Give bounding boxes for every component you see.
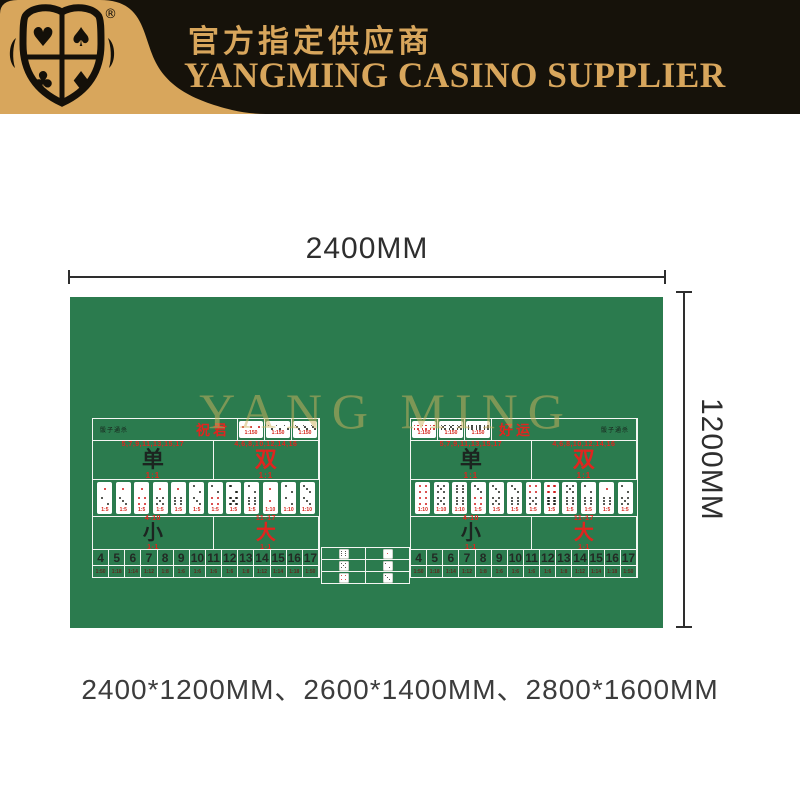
die-pip	[341, 555, 343, 557]
luck-wish-label: 祝君	[196, 420, 230, 440]
die-pip	[529, 491, 531, 493]
die-6-icon	[454, 484, 465, 495]
die-pip	[287, 428, 289, 430]
die-2-icon	[228, 484, 239, 495]
width-dimension-line	[68, 270, 666, 284]
die-5-icon	[528, 496, 539, 507]
odd-even-band: 5,7,9,11,13,15,17单1:14,6,8,10,12,14,16双1…	[410, 440, 638, 480]
total-odds-cell: 1:8	[157, 565, 174, 578]
die-4-icon	[210, 496, 221, 507]
total-odds-cell: 1:6	[189, 565, 206, 578]
die-pip	[572, 497, 574, 499]
dice-kill-all-label: 骰子通杀	[100, 425, 128, 434]
pair-odds-label: 1:5	[511, 508, 518, 513]
die-4-icon	[417, 496, 428, 507]
die-pip	[480, 491, 482, 493]
die-pip	[309, 491, 311, 493]
total-cell-15: 15	[270, 549, 287, 566]
die-pip	[443, 497, 445, 499]
total-odds-cell: 1:6	[173, 565, 190, 578]
die-pip	[159, 488, 161, 490]
die-pip	[174, 500, 176, 502]
die-pip	[345, 563, 347, 565]
die-pip	[284, 425, 286, 427]
die-pip	[437, 485, 439, 487]
die-pip	[498, 497, 500, 499]
luck-wish-label: 好运	[499, 420, 533, 440]
die-pip	[532, 500, 534, 502]
big-character: 大	[256, 523, 276, 543]
die-pip	[138, 497, 140, 499]
die-pip	[553, 500, 555, 502]
total-odds-cell: 1:8	[555, 565, 572, 578]
odd-character: 单	[142, 449, 164, 471]
total-cell-14: 14	[253, 549, 270, 566]
total-odds-cell: 1:14	[270, 565, 287, 578]
die-pip	[122, 488, 124, 490]
triple-bet-box: 1:150	[412, 421, 436, 438]
small-big-band: 4-10小1-111-17大1-1	[92, 516, 320, 550]
die-pip	[419, 503, 421, 505]
odd-bet-area: 5,7,9,11,13,15,17单1:1	[92, 440, 214, 480]
brand-header: ♥ ♠ ♣ ♦ ® 官方指定供应商 YANGMING CASINO SUPPLI…	[0, 0, 800, 114]
total-odds-cell: 1:12	[253, 565, 270, 578]
small-bet-area: 4-10小1-1	[410, 516, 532, 550]
die-pip	[425, 425, 427, 427]
die-pip	[345, 579, 347, 581]
die-pip	[553, 503, 555, 505]
die-pip	[547, 485, 549, 487]
die-3-icon	[509, 484, 520, 495]
die-pip	[553, 497, 555, 499]
die-3-icon	[491, 484, 502, 495]
die-pip	[269, 488, 271, 490]
die-pip	[621, 503, 623, 505]
height-dimension-line	[676, 291, 692, 628]
die-1-icon	[601, 484, 612, 495]
die-pip	[414, 425, 416, 427]
die-pip	[174, 503, 176, 505]
betting-layout-right-half: 1:1501:1501:150好运骰子通杀5,7,9,11,13,15,17单1…	[410, 418, 638, 583]
die-pip	[276, 425, 278, 427]
die-pip	[345, 555, 347, 557]
svg-text:♥: ♥	[31, 23, 54, 53]
die-pip	[425, 503, 427, 505]
pair-odds-label: 1:5	[493, 508, 500, 513]
total-odds-cell: 1:6	[523, 565, 540, 578]
die-1-icon	[118, 484, 129, 495]
odd-character: 单	[460, 449, 482, 471]
die-pip	[440, 500, 442, 502]
pair-odds-label: 1:5	[101, 508, 108, 513]
die-pip	[572, 500, 574, 502]
die-pip	[101, 497, 103, 499]
die-pip	[498, 503, 500, 505]
triple-bet-cell: 1:150	[464, 418, 492, 441]
total-odds-cell: 1:14	[124, 565, 141, 578]
pair-bet-cell: 1:5	[544, 482, 559, 514]
die-pip	[511, 485, 513, 487]
die-pip	[425, 485, 427, 487]
die-pip	[566, 503, 568, 505]
die-pip	[514, 488, 516, 490]
total-cell-5: 5	[426, 549, 443, 566]
die-pip	[433, 425, 435, 427]
die-pip	[566, 485, 568, 487]
die-pip	[229, 485, 231, 487]
total-cell-13: 13	[555, 549, 572, 566]
small-character: 小	[143, 523, 163, 543]
die-pip	[529, 503, 531, 505]
die-pip	[511, 500, 513, 502]
total-odds-cell: 1:18	[108, 565, 125, 578]
pair-odds-label: 1:5	[621, 508, 628, 513]
die-pip	[144, 497, 146, 499]
die-4-icon	[417, 484, 428, 495]
die-pip	[603, 500, 605, 502]
total-odds-cell: 1:6	[205, 565, 222, 578]
die-pip	[235, 503, 237, 505]
triple-odds-label: 1:150	[472, 431, 485, 436]
die-pip	[492, 503, 494, 505]
die-pip	[254, 500, 256, 502]
die-pip	[492, 497, 494, 499]
die-pip	[385, 575, 387, 577]
even-bet-area: 4,6,8,10,12,14,16双1:1	[213, 440, 319, 480]
die-1-icon	[155, 484, 166, 495]
triple-bet-cell: 1:150	[291, 418, 319, 441]
pair-odds-label: 1:5	[248, 508, 255, 513]
die-pip	[487, 428, 489, 430]
total-cell-16: 16	[604, 549, 621, 566]
die-pip	[444, 425, 446, 427]
die-pip	[535, 497, 537, 499]
die-pip	[460, 425, 462, 427]
total-cell-7: 7	[458, 549, 475, 566]
triple-bet-cell: 1:150	[410, 418, 438, 441]
die-4-icon	[546, 484, 557, 495]
die-pip	[285, 485, 287, 487]
die-pip	[492, 485, 494, 487]
total-odds-cell: 1:18	[286, 565, 303, 578]
total-cell-12: 12	[221, 549, 238, 566]
die-pip	[584, 485, 586, 487]
pair-bet-cell: 1:5	[489, 482, 504, 514]
die-pip	[341, 563, 343, 565]
die-pip	[443, 485, 445, 487]
total-odds-cell: 1:14	[588, 565, 605, 578]
die-3-icon	[302, 496, 313, 507]
die-pip	[441, 428, 443, 430]
die-pip	[624, 500, 626, 502]
pair-bet-cell: 1:5	[208, 482, 223, 514]
pair-bet-cell: 1:10	[263, 482, 278, 514]
big-range-label: 11-17	[574, 515, 594, 522]
die-pip	[177, 488, 179, 490]
pair-odds-label: 1:5	[120, 508, 127, 513]
die-pip	[547, 500, 549, 502]
single-die-bet-block	[322, 548, 410, 584]
die-pip	[199, 491, 201, 493]
total-cell-8: 8	[475, 549, 492, 566]
die-pip	[122, 500, 124, 502]
pair-odds-label: 1:5	[193, 508, 200, 513]
die-2-icon	[583, 484, 594, 495]
die-pip	[498, 491, 500, 493]
available-sizes-caption: 2400*1200MM、2600*1400MM、2800*1600MM	[0, 668, 800, 708]
die-pip	[389, 567, 391, 569]
die-pip	[480, 503, 482, 505]
big-bet-area: 11-17大1-1	[531, 516, 637, 550]
pair-odds-label: 1:5	[156, 508, 163, 513]
die-6-icon	[339, 549, 349, 559]
die-2-icon	[620, 484, 631, 495]
die-6-icon	[246, 496, 257, 507]
die-pip	[511, 503, 513, 505]
die-pip	[254, 503, 256, 505]
die-pip	[517, 497, 519, 499]
pair-odds-label: 1:5	[175, 508, 182, 513]
total-odds-cell: 1:50	[302, 565, 319, 578]
pair-odds-label: 1:5	[138, 508, 145, 513]
die-1-icon	[383, 549, 393, 559]
triple-bet-box: 1:150	[239, 421, 263, 438]
totals-number-row: 4567891011121314151617	[410, 549, 638, 566]
kill-all-cell: 骰子通杀祝君	[92, 418, 238, 441]
die-pip	[547, 503, 549, 505]
total-odds-cell: 1:8	[237, 565, 254, 578]
die-3-icon	[383, 573, 393, 583]
die-2-icon	[383, 561, 393, 571]
die-6-icon	[546, 496, 557, 507]
die-pip	[462, 503, 464, 505]
die-pip	[474, 485, 476, 487]
die-pip	[211, 497, 213, 499]
pair-bet-cell: 1:10	[452, 482, 467, 514]
die-2-icon	[283, 484, 294, 495]
die-pip	[456, 497, 458, 499]
die-pip	[211, 503, 213, 505]
die-1-icon	[265, 496, 276, 507]
die-pip	[425, 497, 427, 499]
total-cell-9: 9	[173, 549, 190, 566]
total-cell-10: 10	[507, 549, 524, 566]
triple-odds-label: 1:150	[245, 431, 258, 436]
die-pip	[584, 503, 586, 505]
die-pip	[621, 485, 623, 487]
die-5-icon	[491, 496, 502, 507]
die-pip	[341, 579, 343, 581]
die-pip	[345, 567, 347, 569]
small-bet-area: 4-10小1-1	[92, 516, 214, 550]
die-pip	[250, 426, 252, 428]
die-2-icon	[191, 484, 202, 495]
die-pip	[217, 503, 219, 505]
die-pip	[627, 491, 629, 493]
die-2-icon	[99, 496, 110, 507]
pair-bet-cell: 1:10	[434, 482, 449, 514]
die-pip	[180, 497, 182, 499]
pair-bet-cell: 1:5	[171, 482, 186, 514]
big-bet-area: 11-17大1-1	[213, 516, 319, 550]
die-pip	[495, 500, 497, 502]
die-pip	[474, 497, 476, 499]
die-6-icon	[173, 496, 184, 507]
triple-bet-box: 1:150	[293, 421, 317, 438]
pair-bet-cell: 1:5	[581, 482, 596, 514]
pair-bet-cell: 1:10	[415, 482, 430, 514]
die-pip	[517, 503, 519, 505]
small-character: 小	[461, 523, 481, 543]
totals-odds-row: 1:501:181:141:121:81:61:61:61:61:81:121:…	[410, 565, 638, 578]
pair-bet-cell: 1:5	[97, 482, 112, 514]
die-1-icon	[99, 484, 110, 495]
total-odds-cell: 1:12	[458, 565, 475, 578]
die-pip	[199, 503, 201, 505]
pair-bets-band: 1:101:101:101:51:51:51:51:51:51:51:51:5	[410, 479, 638, 517]
die-pip	[414, 428, 416, 430]
svg-text:♠: ♠	[69, 23, 92, 53]
total-cell-7: 7	[140, 549, 157, 566]
pair-odds-label: 1:5	[548, 508, 555, 513]
die-5-icon	[436, 484, 447, 495]
die-pip	[387, 553, 389, 555]
die-pip	[235, 491, 237, 493]
die-1-icon	[265, 484, 276, 495]
die-pip	[248, 503, 250, 505]
die-6-icon	[509, 496, 520, 507]
die-2-icon	[210, 484, 221, 495]
die-5-icon	[436, 496, 447, 507]
die-pip	[144, 503, 146, 505]
die-pip	[422, 425, 424, 427]
die-pip	[306, 500, 308, 502]
die-pip	[306, 488, 308, 490]
die-pip	[603, 497, 605, 499]
pair-odds-label: 1:5	[212, 508, 219, 513]
die-pip	[480, 497, 482, 499]
registered-trademark-mark: ®	[104, 7, 117, 22]
pair-odds-label: 1:5	[566, 508, 573, 513]
pair-bet-cell: 1:5	[526, 482, 541, 514]
die-pip	[553, 491, 555, 493]
triple-odds-label: 1:150	[272, 431, 285, 436]
pair-bet-cell: 1:5	[116, 482, 131, 514]
dice-kill-all-label: 骰子通杀	[601, 425, 629, 434]
die-pip	[452, 425, 454, 427]
die-pip	[535, 485, 537, 487]
total-odds-cell: 1:18	[426, 565, 443, 578]
pair-odds-label: 1:10	[436, 508, 446, 513]
die-pip	[389, 579, 391, 581]
die-pip	[343, 565, 345, 567]
big-character: 大	[574, 523, 594, 543]
die-pip	[156, 497, 158, 499]
die-pip	[211, 485, 213, 487]
die-pip	[495, 488, 497, 490]
die-6-icon	[564, 496, 575, 507]
die-pip	[254, 497, 256, 499]
die-pip	[584, 497, 586, 499]
die-pip	[159, 500, 161, 502]
die-pip	[590, 491, 592, 493]
die-pip	[468, 428, 470, 430]
die-5-icon	[339, 561, 349, 571]
die-pip	[303, 485, 305, 487]
die-pip	[566, 491, 568, 493]
betting-layout-left-half: 骰子通杀祝君1:1501:1501:1505,7,9,11,13,15,17单1…	[92, 418, 320, 583]
total-odds-cell: 1:14	[442, 565, 459, 578]
die-pip	[477, 488, 479, 490]
width-dimension-label: 2400MM	[68, 232, 666, 266]
die-pip	[460, 428, 462, 430]
die-pip	[553, 485, 555, 487]
die-4-icon	[528, 484, 539, 495]
die-pip	[229, 497, 231, 499]
die-pip	[291, 503, 293, 505]
total-cell-8: 8	[157, 549, 174, 566]
even-bet-area: 4,6,8,10,12,14,16双1:1	[531, 440, 637, 480]
die-pip	[107, 503, 109, 505]
die-pip	[425, 491, 427, 493]
die-pip	[462, 491, 464, 493]
die-pip	[603, 503, 605, 505]
pair-bet-cell: 1:5	[244, 482, 259, 514]
pair-bet-cell: 1:5	[153, 482, 168, 514]
total-cell-10: 10	[189, 549, 206, 566]
die-4-icon	[473, 496, 484, 507]
die-pip	[566, 500, 568, 502]
total-cell-9: 9	[491, 549, 508, 566]
top-band: 1:1501:1501:150好运骰子通杀	[410, 418, 638, 441]
small-big-band: 4-10小1-111-17大1-1	[410, 516, 638, 550]
die-4-icon	[136, 496, 147, 507]
die-5-icon	[228, 496, 239, 507]
die-pip	[462, 497, 464, 499]
total-odds-cell: 1:50	[92, 565, 109, 578]
pair-odds-label: 1:5	[530, 508, 537, 513]
die-pip	[456, 503, 458, 505]
die-pip	[385, 563, 387, 565]
die-pip	[627, 503, 629, 505]
die-pip	[456, 500, 458, 502]
die-3-icon	[473, 484, 484, 495]
die-pip	[193, 485, 195, 487]
die-pip	[606, 488, 608, 490]
even-character: 双	[573, 449, 595, 471]
pair-odds-label: 1:5	[603, 508, 610, 513]
total-odds-cell: 1:8	[475, 565, 492, 578]
totals-number-row: 4567891011121314151617	[92, 549, 320, 566]
pair-odds-label: 1:10	[455, 508, 465, 513]
die-pip	[590, 500, 592, 502]
pair-odds-label: 1:10	[284, 508, 294, 513]
die-2-icon	[283, 496, 294, 507]
die-5-icon	[620, 496, 631, 507]
die-pip	[248, 500, 250, 502]
die-pip	[248, 485, 250, 487]
small-range-label: 4-10	[145, 515, 161, 522]
die-pip	[196, 500, 198, 502]
die-pip	[254, 491, 256, 493]
die-pip	[258, 426, 260, 428]
die-pip	[217, 497, 219, 499]
pair-bet-cell: 1:5	[618, 482, 633, 514]
die-pip	[443, 491, 445, 493]
total-cell-11: 11	[523, 549, 540, 566]
total-cell-17: 17	[302, 549, 319, 566]
die-2-icon	[246, 484, 257, 495]
